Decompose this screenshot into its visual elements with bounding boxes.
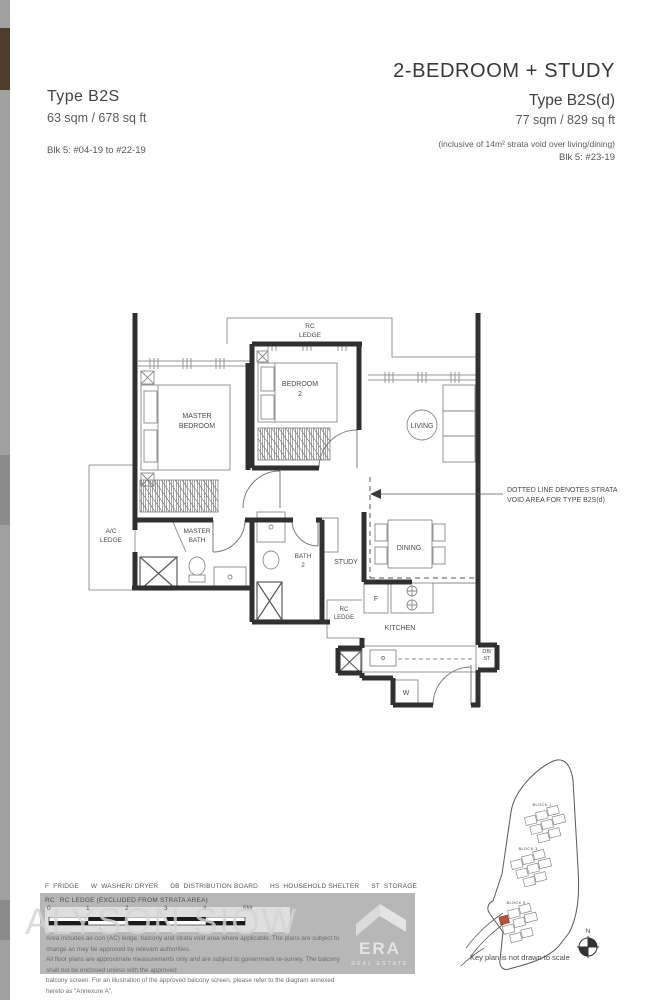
label-ac-ledge: A/C xyxy=(106,528,117,535)
floorplan-drawing: DOTTED LINE DENOTES STRATA VOID AREA FOR… xyxy=(0,290,658,735)
label-master-bath: MASTER xyxy=(183,528,210,535)
svg-text:LEDGE: LEDGE xyxy=(100,537,123,544)
label-study: STUDY xyxy=(334,559,358,566)
unit-type-header-right: 2-BEDROOM + STUDY Type B2S(d) 77 sqm / 8… xyxy=(393,60,615,163)
legend-item: STSTORAGE xyxy=(371,883,417,890)
svg-text:2: 2 xyxy=(301,562,305,569)
adjacent-page-mark xyxy=(0,900,10,940)
disclaimer-line2: All floor plans are approximate measurem… xyxy=(46,955,346,976)
unit-blocks: Blk 5: #23-19 xyxy=(393,152,615,163)
svg-text:BEDROOM: BEDROOM xyxy=(179,423,215,430)
annotation-line1: DOTTED LINE DENOTES STRATA xyxy=(507,487,618,494)
north-compass-icon: N xyxy=(577,928,599,958)
page-title: 2-BEDROOM + STUDY xyxy=(393,60,615,83)
label-bath2: BATH xyxy=(295,553,312,560)
disclaimer-line3: balcony screen. For an illustration of t… xyxy=(46,976,346,997)
legend-item: HSHOUSEHOLD SHELTER xyxy=(270,883,359,890)
legend: FFRIDGE WWASHER/ DRYER DBDISTRIBUTION BO… xyxy=(45,883,417,890)
strata-void-note: (inclusive of 14m² strata void over livi… xyxy=(393,139,615,149)
unit-blocks: Blk 5: #04-19 to #22-19 xyxy=(47,145,146,156)
svg-text:LEDGE: LEDGE xyxy=(334,615,354,621)
block1-cluster xyxy=(523,804,569,844)
block3-label: BLOCK 3 xyxy=(519,846,538,851)
label-bedroom2: BEDROOM xyxy=(282,381,318,388)
label-db-st: DB/ xyxy=(482,649,492,655)
label-master-bedroom: MASTER xyxy=(182,413,211,420)
svg-text:ST: ST xyxy=(483,656,491,662)
block5-cluster xyxy=(497,902,541,944)
legend-item: WWASHER/ DRYER xyxy=(91,883,158,890)
unit-type-header-left: Type B2S 63 sqm / 678 sq ft Blk 5: #04-1… xyxy=(47,88,146,156)
north-label: N xyxy=(586,928,591,935)
key-plan: BLOCK 1 BLOCK 3 BLOCK 5 Key plan is not … xyxy=(460,750,658,980)
block3-cluster xyxy=(509,848,555,888)
legend-item: FFRIDGE xyxy=(45,883,79,890)
brand-name: ERA xyxy=(344,939,416,959)
annotation-line2: VOID AREA FOR TYPE B2S(d) xyxy=(507,497,605,504)
svg-text:BATH: BATH xyxy=(189,537,206,544)
adjacent-page-thumbnail xyxy=(0,28,10,90)
brand-logo-watermark: ERA REAL ESTATE xyxy=(344,898,416,970)
label-rc-ledge-top: RC xyxy=(305,323,315,330)
agent-watermark: ALYSON SIOW xyxy=(25,901,298,943)
highlighted-unit xyxy=(499,915,510,925)
disclaimer-text: Area includes air-con (AC) ledge, balcon… xyxy=(46,934,346,997)
label-washer: W xyxy=(403,690,410,697)
label-living: LIVING xyxy=(411,423,434,430)
label-dining: DINING xyxy=(397,545,422,552)
label-fridge: F xyxy=(374,596,378,603)
unit-area: 63 sqm / 678 sq ft xyxy=(47,111,146,125)
svg-text:LEDGE: LEDGE xyxy=(299,332,322,339)
unit-type-name: Type B2S xyxy=(47,88,146,106)
block5-label: BLOCK 5 xyxy=(507,900,526,905)
unit-type-name: Type B2S(d) xyxy=(393,92,615,110)
brand-roof-icon xyxy=(344,898,416,938)
brand-subtitle: REAL ESTATE xyxy=(344,961,416,967)
legend-item: DBDISTRIBUTION BOARD xyxy=(170,883,258,890)
strata-void-annotation: DOTTED LINE DENOTES STRATA VOID AREA FOR… xyxy=(370,477,618,578)
block1-label: BLOCK 1 xyxy=(533,802,552,807)
floorplan-brochure-page: { "colors": { "wall": "#303030", "thin_l… xyxy=(0,0,658,1000)
unit-area: 77 sqm / 829 sq ft xyxy=(393,113,615,127)
svg-text:2: 2 xyxy=(298,391,302,398)
label-kitchen: KITCHEN xyxy=(385,625,416,632)
keyplan-caption: Key plan is not drawn to scale xyxy=(470,953,570,962)
label-rc-ledge-mid: RC xyxy=(340,607,349,613)
